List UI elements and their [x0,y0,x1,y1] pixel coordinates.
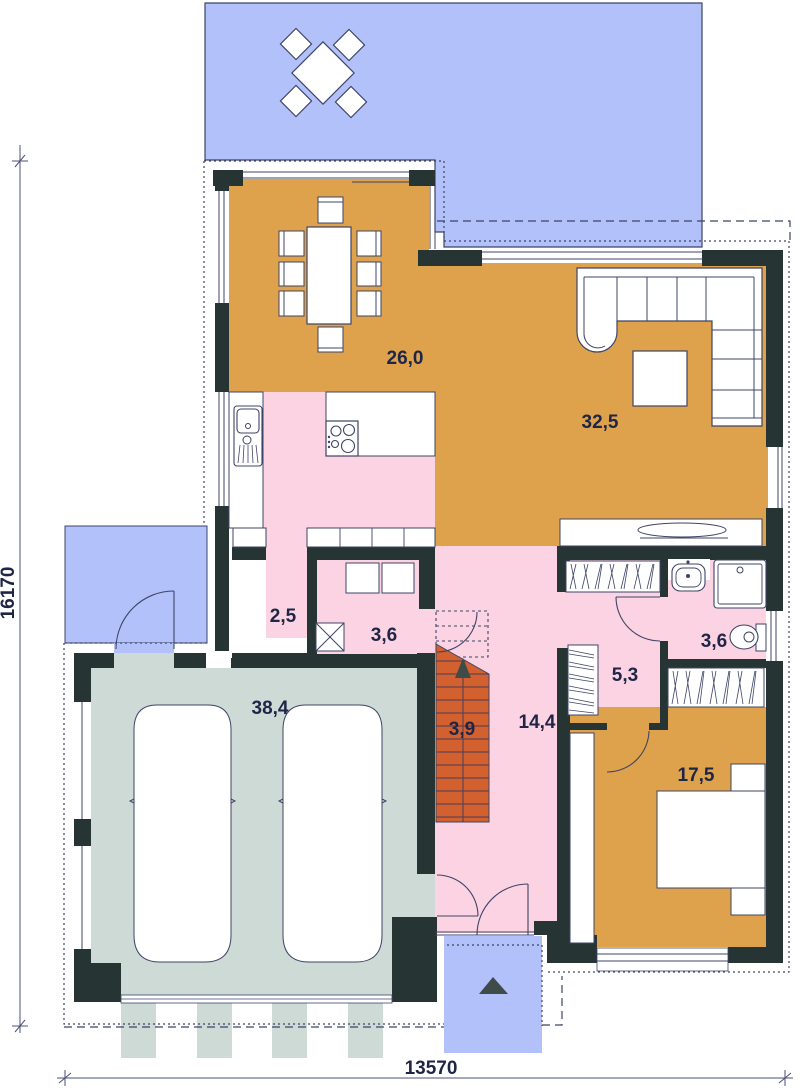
svg-text:3,6: 3,6 [371,625,397,646]
svg-text:32,5: 32,5 [582,412,619,433]
svg-text:26,0: 26,0 [387,348,424,369]
svg-text:5,3: 5,3 [612,665,638,686]
svg-text:14,4: 14,4 [519,712,556,733]
svg-text:17,5: 17,5 [678,765,715,786]
svg-text:16170: 16170 [0,567,19,620]
svg-text:38,4: 38,4 [252,698,289,719]
svg-text:2,5: 2,5 [270,606,297,627]
svg-text:3,6: 3,6 [701,631,727,652]
svg-text:3,9: 3,9 [449,719,475,740]
svg-text:13570: 13570 [405,1058,458,1079]
